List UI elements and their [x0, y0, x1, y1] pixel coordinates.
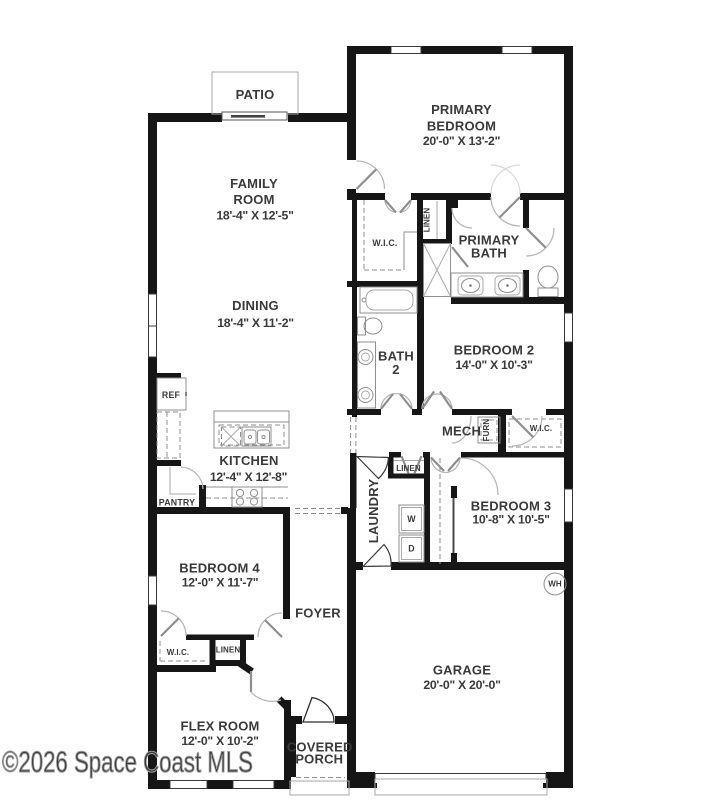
- svg-text:©2026 Space Coast MLS: ©2026 Space Coast MLS: [2, 746, 253, 779]
- svg-text:PRIMARY: PRIMARY: [431, 102, 492, 117]
- svg-text:LAUNDRY: LAUNDRY: [366, 479, 381, 544]
- svg-text:PORCH: PORCH: [295, 752, 343, 767]
- svg-text:18'-4" X 12'-5": 18'-4" X 12'-5": [216, 209, 294, 223]
- svg-text:D: D: [408, 544, 415, 554]
- svg-text:10'-8" X 10'-5": 10'-8" X 10'-5": [472, 512, 550, 526]
- svg-text:18'-4" X 11'-2": 18'-4" X 11'-2": [217, 316, 294, 330]
- svg-text:REF: REF: [162, 390, 181, 400]
- svg-text:LINEN: LINEN: [396, 464, 421, 473]
- svg-text:12'-4" X 12'-8": 12'-4" X 12'-8": [210, 470, 288, 484]
- svg-text:GARAGE: GARAGE: [433, 663, 491, 678]
- svg-text:20'-0" X 20'-0": 20'-0" X 20'-0": [423, 678, 501, 692]
- svg-text:BEDROOM 2: BEDROOM 2: [454, 343, 535, 358]
- svg-text:LINEN: LINEN: [423, 208, 432, 233]
- svg-text:FLEX ROOM: FLEX ROOM: [180, 719, 259, 734]
- svg-text:BEDROOM 3: BEDROOM 3: [471, 498, 552, 513]
- svg-text:PANTRY: PANTRY: [159, 498, 195, 508]
- svg-text:14'-0" X 10'-3": 14'-0" X 10'-3": [455, 358, 533, 372]
- svg-text:FURN: FURN: [482, 419, 491, 442]
- svg-text:12'-0" X 11'-7": 12'-0" X 11'-7": [182, 576, 259, 590]
- svg-text:W.I.C.: W.I.C.: [372, 238, 397, 248]
- svg-text:FOYER: FOYER: [295, 606, 341, 621]
- svg-text:LINEN: LINEN: [216, 646, 241, 655]
- svg-text:ROOM: ROOM: [233, 192, 274, 207]
- svg-text:BEDROOM: BEDROOM: [427, 119, 496, 134]
- svg-text:KITCHEN: KITCHEN: [219, 453, 278, 468]
- svg-text:BEDROOM 4: BEDROOM 4: [179, 561, 260, 576]
- svg-text:WH: WH: [548, 580, 562, 589]
- svg-text:20'-0" X 13'-2": 20'-0" X 13'-2": [423, 134, 501, 148]
- svg-text:W.I.C.: W.I.C.: [530, 424, 552, 433]
- svg-text:FAMILY: FAMILY: [230, 176, 278, 191]
- svg-text:DINING: DINING: [232, 298, 279, 313]
- svg-text:W: W: [407, 514, 416, 524]
- svg-text:2: 2: [392, 362, 399, 377]
- svg-text:W.I.C.: W.I.C.: [167, 648, 189, 657]
- svg-text:MECH: MECH: [442, 424, 481, 439]
- svg-text:PATIO: PATIO: [236, 87, 275, 102]
- svg-text:BATH: BATH: [471, 246, 507, 261]
